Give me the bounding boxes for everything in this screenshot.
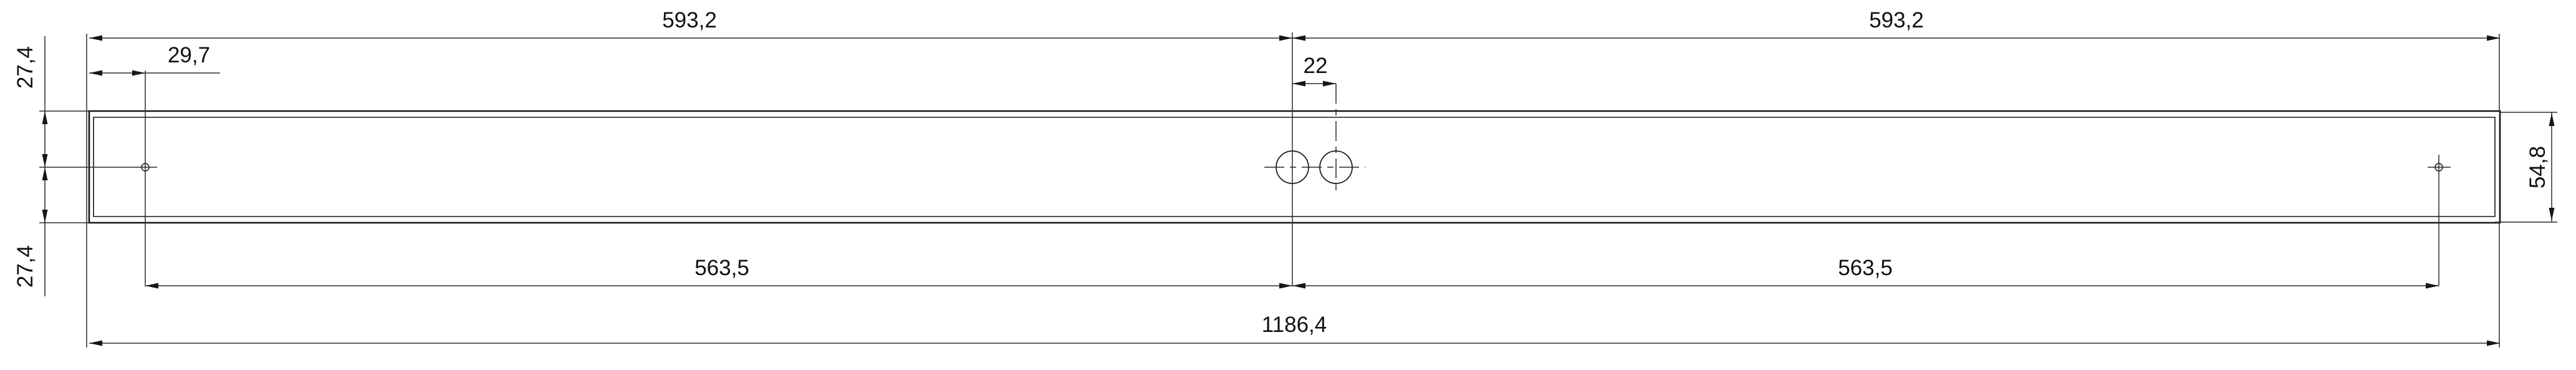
dim-top-span-right: 593,2 (1869, 8, 1924, 32)
dim-profile-height: 54,8 (2526, 146, 2550, 188)
dim-bottom-span-right: 563,5 (1838, 256, 1893, 280)
dim-left-offset-bottom: 27,4 (13, 245, 37, 288)
dim-bottom-span-left: 563,5 (694, 256, 749, 280)
dim-left-offset-top: 27,4 (13, 46, 37, 89)
dim-center-holes-spacing: 22 (1304, 54, 1328, 78)
dim-top-span-left: 593,2 (662, 8, 717, 32)
drawing-canvas: 593,2 593,2 29,7 22 27,4 27,4 54,8 563,5… (0, 0, 2576, 370)
dim-end-hole-offset: 29,7 (168, 43, 210, 67)
dim-overall-length: 1186,4 (1262, 313, 1327, 337)
